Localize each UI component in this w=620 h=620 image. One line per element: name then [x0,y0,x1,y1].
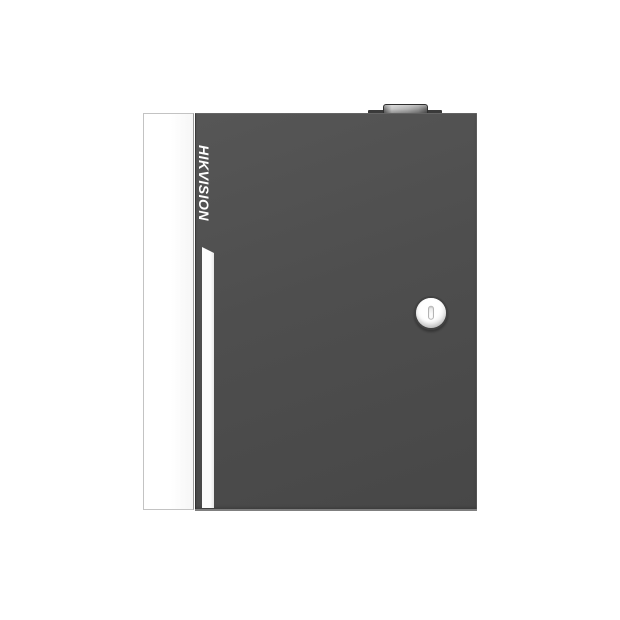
door-bottom-edge [195,509,477,511]
door-lock [416,298,446,328]
accent-stripe [202,247,214,508]
enclosure-side-panel [143,113,194,510]
keyhole-icon [428,306,434,320]
product-photo: HIKVISION [0,0,620,620]
brand-logo: HIKVISION [196,133,212,233]
